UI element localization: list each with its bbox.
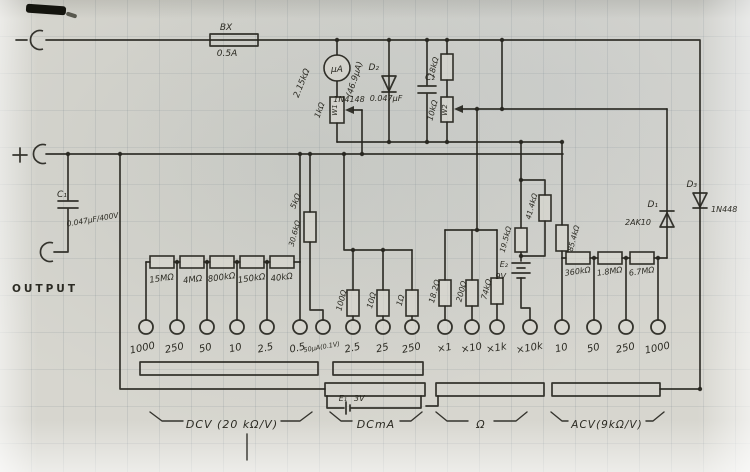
d3-part: 1N448 (711, 205, 737, 214)
dcv-tap-contact (230, 320, 244, 334)
acv-tap-label: 50 (586, 342, 601, 355)
acv-resistor-value: 6.7MΩ (628, 265, 656, 278)
dcv-resistor-icon (270, 256, 294, 268)
fuse-rating: 0.5A (217, 49, 237, 59)
acv-resistor-value: 360kΩ (564, 265, 592, 278)
dcma-tap-contact (316, 320, 330, 334)
e2-battery-icon (512, 263, 530, 278)
acv-resistor-icon (566, 252, 590, 264)
dcv-resistor-icon (180, 256, 204, 268)
c1-value: 0.047μF/400V (66, 210, 120, 228)
r18k-value: 18kΩ (427, 55, 441, 78)
r5k-value: 5kΩ (289, 191, 304, 210)
acv-switch-bar (552, 383, 660, 396)
acv-tap-contact (651, 320, 665, 334)
section-braces: DCV (20 kΩ/V) DCmA Ω ACV(9kΩ/V) (150, 412, 664, 460)
acv-tap-label: 10 (554, 342, 569, 355)
meter-branch: μA (46.9μA) 2.15kΩ W1 1kΩ (292, 40, 366, 142)
ohm-range-section: 18.2Ω 200Ω 74kΩ ×1 ×10 ×1k ×10k 19.5kΩ 4… (427, 142, 551, 356)
junction-dots (66, 38, 702, 391)
d2-part: 1N4148 (333, 95, 364, 104)
dcv-resistor-icon (210, 256, 234, 268)
dcv-resistor-icon (150, 256, 174, 268)
dcv-resistor-value: 800kΩ (207, 271, 236, 285)
ohm-tap-contact (438, 320, 452, 334)
shunt-resistor-icon (347, 290, 359, 316)
r18k-resistor-icon (441, 54, 453, 80)
e2-designator: E₂ (500, 260, 509, 269)
e1-designator: E₁ (339, 394, 347, 403)
acv-resistor-icon (630, 252, 654, 264)
meter-unit: μA (330, 65, 343, 75)
c1-designator: C₁ (57, 190, 67, 200)
dcma-tap-label: 2.5 (344, 342, 362, 356)
output-jack-icon (40, 243, 53, 262)
shunt-adjust-branch: 18kΩ W2 10kΩ (426, 40, 463, 142)
dcv-tap-label: 1000 (129, 341, 156, 357)
ohm-bar-lead-wire (426, 396, 438, 406)
ohm-tap-label: ×1 (436, 342, 452, 355)
dcv-resistor-value: 150kΩ (237, 272, 266, 286)
d1-part: 2AK10 (625, 218, 651, 227)
fuse-name: BX (220, 23, 233, 33)
c2-value: 0.047μF (370, 94, 403, 103)
dcma-tap-contact (376, 320, 390, 334)
acv-resistor-icon (598, 252, 622, 264)
dcma-tap-label: 50μA(0.1V) (303, 340, 341, 354)
w1-wiper-arrow-icon (345, 106, 354, 114)
dcv-section-label: DCV (20 kΩ/V) (186, 418, 278, 431)
ohm-tap-label: ×10 (460, 341, 483, 355)
dcv-tap-label: 2.5 (257, 342, 275, 356)
dcv-tap-label: 10 (228, 342, 243, 355)
w1-value: 1kΩ (313, 100, 327, 119)
dcv-tap-label: 250 (164, 341, 185, 356)
dcv-tap-contact (200, 320, 214, 334)
e2-to-x10k-wire (521, 278, 530, 320)
r19k5-resistor-icon (515, 228, 527, 252)
acv-tap-contact (555, 320, 569, 334)
r5k-resistor-icon (304, 212, 316, 242)
acv-tap-contact (619, 320, 633, 334)
multimeter-schematic: BX 0.5A C₁ 0.047μF/400V OUTPUT μA (46.9μ… (0, 0, 750, 472)
output-label: OUTPUT (12, 283, 78, 295)
ohm-tap-contact (523, 320, 537, 334)
w2-designator: W2 (441, 104, 449, 116)
d3-designator: D₃ (686, 180, 697, 190)
d2-designator: D₂ (368, 63, 379, 73)
c1-branch-wire (54, 154, 78, 252)
meter-internal-resistance: 2.15kΩ (292, 67, 313, 99)
acv-tap-label: 250 (615, 341, 636, 356)
dcv-divider: 15MΩ 4MΩ 800kΩ 150kΩ 40kΩ 1000 250 50 10… (129, 256, 307, 357)
ohm-tap-contact (465, 320, 479, 334)
dcv-tap-contact (293, 320, 307, 334)
plus-sign-icon (13, 148, 27, 162)
wires (46, 40, 700, 389)
d1-designator: D₁ (647, 200, 658, 210)
negative-rail-wire (46, 40, 700, 389)
negative-jack-icon (30, 30, 43, 49)
dcma-switch-bar (333, 362, 423, 375)
e2-value: 9V (495, 272, 506, 281)
ohm-section-label: Ω (475, 418, 485, 431)
r19k5-value: 19.5kΩ (498, 225, 514, 253)
dcma-tap-contact (405, 320, 419, 334)
dcv-tap-contact (170, 320, 184, 334)
shunt-value: 1Ω (395, 293, 407, 307)
acv-tap-contact (587, 320, 601, 334)
shunt-resistor-icon (406, 290, 418, 316)
ohm-tap-label: ×1k (485, 341, 508, 356)
dcma-section-label: DCmA (357, 418, 395, 431)
positive-jack-icon (33, 145, 46, 164)
dcv-resistor-value: 40kΩ (270, 271, 294, 284)
shunt-resistor-icon (377, 290, 389, 316)
dcv-tap-contact (260, 320, 274, 334)
ohm-tap-contact (490, 320, 504, 334)
acv-section-label: ACV(9kΩ/V) (570, 419, 642, 431)
dcma-tap-contact (346, 320, 360, 334)
dcv-resistor-value: 4MΩ (182, 274, 203, 287)
r41k4-value: 41.4kΩ (524, 192, 540, 220)
ohm-switch-bar (436, 383, 544, 396)
acv-tap-label: 1000 (644, 341, 671, 357)
shunt-bus-wire (344, 154, 412, 250)
dcma-tap-label: 250 (401, 341, 422, 356)
acv-resistor-value: 1.8MΩ (596, 265, 624, 278)
dcma-tap-label: 25 (375, 342, 390, 355)
input-section: BX 0.5A C₁ 0.047μF/400V OUTPUT (12, 23, 258, 295)
dcv-tap-label: 50 (198, 342, 213, 355)
w2-wiper-arrow-icon (454, 105, 463, 113)
r41k4-resistor-icon (539, 195, 551, 221)
schematic-photo: BX 0.5A C₁ 0.047μF/400V OUTPUT μA (46.9μ… (0, 0, 750, 472)
e1-value: 3V (354, 394, 365, 403)
dcv-resistor-icon (240, 256, 264, 268)
w1-designator: W1 (331, 104, 339, 115)
acv-section: 85.4kΩ 360kΩ 1.8MΩ 6.7MΩ 10 50 250 1000 (554, 142, 671, 357)
c2-branch-wire (418, 40, 436, 142)
dcv-switch-bar (140, 362, 318, 375)
selector-switch-bars: E₁ 3V (140, 362, 660, 414)
rectifier-diodes: D₁ 2AK10 D₃ 1N448 (625, 180, 737, 227)
dcv-resistor-value: 15MΩ (149, 272, 175, 285)
ohm-tap-label: ×10k (515, 341, 545, 357)
dcv-tap-contact (139, 320, 153, 334)
